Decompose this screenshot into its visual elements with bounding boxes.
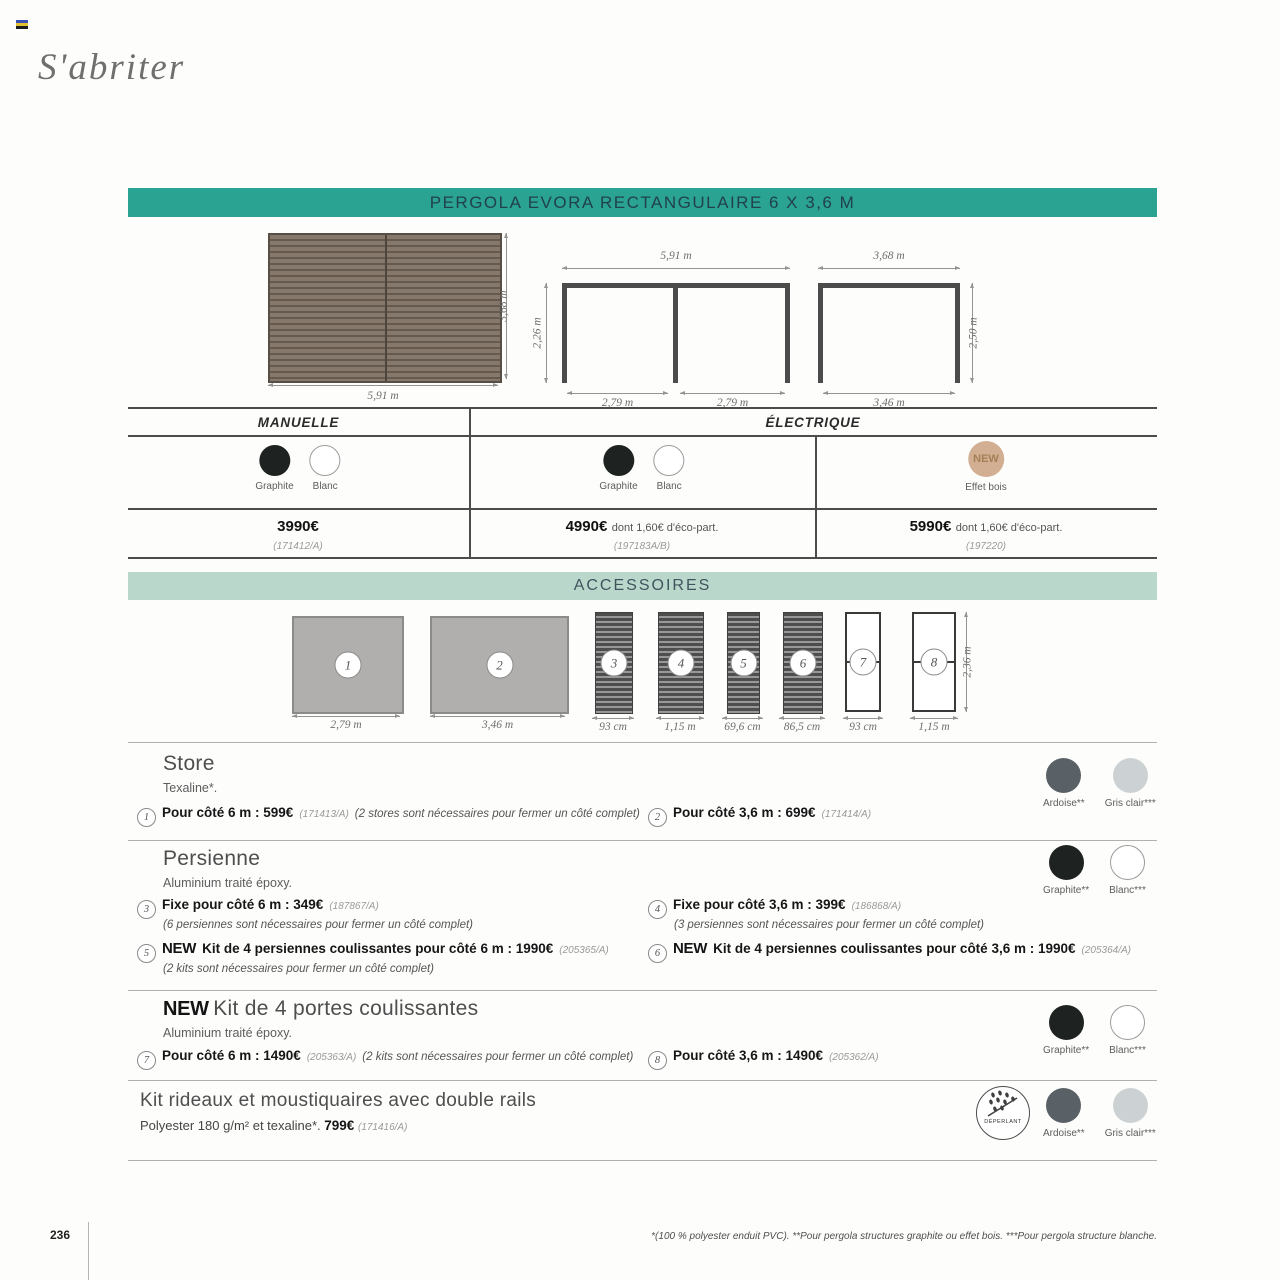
store-item-1: 1 Pour côté 6 m : 599€ (171413/A) (2 sto… — [137, 805, 640, 824]
item-note: (2 stores sont nécessaires pour fermer u… — [355, 808, 640, 820]
accessory-diagram-8: 8 — [912, 612, 956, 712]
swatch-label: Gris clair*** — [1105, 798, 1156, 809]
table-rule — [128, 435, 1157, 437]
accessory-diagram-4: 4 — [658, 612, 704, 714]
product-ref: (197220) — [910, 539, 1063, 554]
swatch-label: Ardoise** — [1043, 798, 1085, 809]
portes-section-title: NEW Kit de 4 portes coulissantes — [163, 997, 478, 1021]
dimension-line — [567, 393, 668, 394]
chapter-title: S'abriter — [38, 46, 185, 89]
dimension-line — [818, 268, 960, 269]
product-ref: (205364/A) — [1082, 945, 1131, 956]
dimension-line — [430, 716, 565, 717]
product-banner-title: PERGOLA EVORA RECTANGULAIRE 6 X 3,6 M — [430, 193, 856, 213]
blanc-swatch — [654, 445, 685, 476]
item-number-badge: 5 — [137, 944, 156, 963]
persienne-item-5: 5 NEW Kit de 4 persiennes coulissantes p… — [137, 940, 609, 960]
item-number-badge: 7 — [850, 649, 877, 676]
price-manual: 3990€ (171412/A) — [273, 515, 322, 554]
manual-color-options: Graphite Blanc — [255, 445, 340, 492]
persienne-item-6: 6 NEW Kit de 4 persiennes coulissantes p… — [648, 940, 1131, 960]
ardoise-swatch — [1046, 758, 1081, 793]
product-ref: (197183A/B) — [566, 539, 719, 554]
gris-clair-swatch — [1113, 758, 1148, 793]
side-view-height-label: 2,50 m — [968, 317, 980, 348]
store-item-2: 2 Pour côté 3,6 m : 699€ (171414/A) — [648, 805, 871, 824]
item-text: Pour côté 3,6 m : 699€ — [673, 805, 816, 820]
section-divider — [128, 1160, 1157, 1161]
accessory-diagram-6: 6 — [783, 612, 823, 714]
post — [562, 283, 567, 383]
item-number-badge: 2 — [486, 652, 513, 679]
roof-divider — [385, 235, 387, 381]
footer-rule — [88, 1222, 89, 1280]
dimension-line — [268, 385, 498, 386]
section-divider — [128, 1080, 1157, 1081]
top-view-width-label: 5,91 m — [268, 390, 498, 402]
table-rule — [815, 435, 817, 557]
item-note: (2 kits sont nécessaires pour fermer un … — [163, 963, 434, 975]
print-registration-mark — [16, 20, 28, 30]
persienne-color-options: Graphite** Blanc*** — [1043, 845, 1146, 896]
section-divider — [128, 990, 1157, 991]
rideaux-color-options: Ardoise** Gris clair*** — [1043, 1088, 1156, 1139]
section-title-text: Kit de 4 portes coulissantes — [213, 997, 478, 1020]
swatch-label: Blanc — [313, 481, 338, 492]
footnote: *(100 % polyester enduit PVC). **Pour pe… — [651, 1231, 1157, 1242]
pricing-table: MANUELLE ÉLECTRIQUE Graphite Blanc Graph… — [128, 407, 1157, 559]
dimension-line — [592, 718, 634, 719]
water-drops-icon — [983, 1087, 1023, 1123]
price-value: 4990€ — [566, 518, 608, 535]
blanc-swatch — [1110, 845, 1145, 880]
accessory-dim-2: 3,46 m — [430, 719, 565, 731]
item-number-badge: 1 — [137, 808, 156, 827]
store-section-subtitle: Texaline*. — [163, 781, 217, 795]
graphite-swatch — [1049, 1005, 1084, 1040]
side-view-width-label: 3,68 m — [818, 250, 960, 262]
rideaux-section-title: Kit rideaux et moustiquaires avec double… — [140, 1090, 536, 1112]
swatch-label: Graphite — [599, 481, 637, 492]
accessory-dim-6: 86,5 cm — [773, 721, 831, 733]
deperlant-badge: DÉPERLANT — [976, 1086, 1030, 1140]
price-suffix: dont 1,60€ d'éco-part. — [956, 522, 1063, 534]
item-number-badge: 6 — [790, 650, 817, 677]
accessory-diagram-7: 7 — [845, 612, 881, 712]
ardoise-swatch — [1046, 1088, 1081, 1123]
dimension-line — [843, 718, 883, 719]
item-text: Pour côté 6 m : 599€ — [162, 805, 293, 820]
accessories-height-label: 2,36 m — [962, 646, 974, 677]
dimension-line — [779, 718, 825, 719]
swatch-label: Graphite** — [1043, 1045, 1089, 1056]
accessory-dim-3: 93 cm — [585, 721, 641, 733]
top-view-height-label: 3,68 m — [498, 290, 510, 321]
item-number-badge: 3 — [601, 650, 628, 677]
rideaux-desc-text: Polyester 180 g/m² et texaline*. — [140, 1118, 321, 1133]
column-header-manual: MANUELLE — [128, 409, 469, 435]
accessory-diagram-2: 2 — [430, 616, 569, 714]
post — [955, 283, 960, 383]
dimension-line — [722, 718, 763, 719]
portes-item-7: 7 Pour côté 6 m : 1490€ (205363/A) (2 ki… — [137, 1048, 633, 1067]
product-ref: (171412/A) — [273, 539, 322, 554]
portes-item-8: 8 Pour côté 3,6 m : 1490€ (205362/A) — [648, 1048, 879, 1067]
post — [818, 283, 823, 383]
item-note: (3 persiennes sont nécessaires pour ferm… — [674, 919, 984, 931]
product-banner: PERGOLA EVORA RECTANGULAIRE 6 X 3,6 M — [128, 188, 1157, 217]
gris-clair-swatch — [1113, 1088, 1148, 1123]
graphite-swatch — [259, 445, 290, 476]
rideaux-description: Polyester 180 g/m² et texaline*. 799€ (1… — [140, 1118, 407, 1133]
product-ref: (171414/A) — [822, 809, 871, 820]
graphite-swatch — [1049, 845, 1084, 880]
price-value: 5990€ — [910, 518, 952, 535]
accessories-banner-title: ACCESSOIRES — [574, 577, 712, 595]
store-section-title: Store — [163, 752, 215, 776]
pergola-front-view-diagram — [562, 283, 790, 383]
section-divider — [128, 840, 1157, 841]
accessory-diagram-3: 3 — [595, 612, 633, 714]
accessory-dim-8: 1,15 m — [906, 721, 962, 733]
price-value: 3990€ — [277, 518, 319, 535]
column-header-electric: ÉLECTRIQUE — [469, 409, 1157, 435]
store-color-options: Ardoise** Gris clair*** — [1043, 758, 1156, 809]
item-number-badge: 8 — [648, 1051, 667, 1070]
item-number-badge: 5 — [730, 650, 757, 677]
product-ref: (171416/A) — [358, 1122, 407, 1133]
item-text: Kit de 4 persiennes coulissantes pour cô… — [713, 941, 1075, 956]
item-note: (2 kits sont nécessaires pour fermer un … — [362, 1051, 633, 1063]
swatch-label: Gris clair*** — [1105, 1128, 1156, 1139]
swatch-label: Blanc*** — [1109, 1045, 1146, 1056]
swatch-label: Blanc*** — [1109, 885, 1146, 896]
pergola-top-view-diagram — [268, 233, 502, 383]
item-text: Fixe pour côté 3,6 m : 399€ — [673, 897, 846, 912]
product-ref: (205365/A) — [559, 945, 608, 956]
product-ref: (171413/A) — [299, 809, 348, 820]
table-rule — [128, 508, 1157, 510]
accessories-banner: ACCESSOIRES — [128, 572, 1157, 600]
swatch-label: Graphite — [255, 481, 293, 492]
graphite-swatch — [603, 445, 634, 476]
dimension-line — [546, 283, 547, 383]
persienne-item-3: 3 Fixe pour côté 6 m : 349€ (187867/A) — [137, 897, 379, 916]
blanc-swatch — [310, 445, 341, 476]
accessory-diagram-1: 1 — [292, 616, 404, 714]
item-number-badge: 7 — [137, 1051, 156, 1070]
dimension-line — [292, 716, 400, 717]
dimension-line — [680, 393, 785, 394]
item-number-badge: 4 — [648, 900, 667, 919]
item-text: Fixe pour côté 6 m : 349€ — [162, 897, 323, 912]
item-number-badge: 8 — [921, 649, 948, 676]
effet-bois-new-badge: NEW — [968, 441, 1004, 477]
persienne-section-title: Persienne — [163, 847, 260, 871]
page-number: 236 — [50, 1228, 70, 1242]
swatch-label: Blanc — [657, 481, 682, 492]
price-value: 799€ — [324, 1118, 354, 1133]
persienne-section-subtitle: Aluminium traité époxy. — [163, 876, 292, 890]
swatch-label: Ardoise** — [1043, 1128, 1085, 1139]
product-ref: (187867/A) — [329, 901, 378, 912]
section-divider — [128, 742, 1157, 743]
item-text: Kit de 4 persiennes coulissantes pour cô… — [202, 941, 553, 956]
item-number-badge: 1 — [335, 652, 362, 679]
accessory-dim-1: 2,79 m — [292, 719, 400, 731]
electric-color-options: Graphite Blanc — [599, 445, 684, 492]
portes-color-options: Graphite** Blanc*** — [1043, 1005, 1146, 1056]
item-number-badge: 3 — [137, 900, 156, 919]
accessory-dim-4: 1,15 m — [652, 721, 708, 733]
new-label: NEW — [162, 940, 196, 957]
item-note: (6 persiennes sont nécessaires pour ferm… — [163, 919, 473, 931]
accessory-dim-7: 93 cm — [835, 721, 891, 733]
item-number-badge: 2 — [648, 808, 667, 827]
new-label: NEW — [163, 998, 209, 1020]
front-view-height-label: 2,26 m — [532, 317, 544, 348]
accessory-dim-5: 69,6 cm — [714, 721, 771, 733]
swatch-label: Graphite** — [1043, 885, 1089, 896]
item-number-badge: 6 — [648, 944, 667, 963]
beam — [818, 283, 960, 288]
post — [673, 283, 678, 383]
post — [785, 283, 790, 383]
product-ref: (205362/A) — [829, 1052, 878, 1063]
dimension-line — [656, 718, 704, 719]
item-number-badge: 4 — [668, 650, 695, 677]
badge-label: DÉPERLANT — [984, 1119, 1022, 1125]
dimension-line — [910, 718, 958, 719]
persienne-item-4: 4 Fixe pour côté 3,6 m : 399€ (186868/A) — [648, 897, 901, 916]
product-ref: (205363/A) — [307, 1052, 356, 1063]
pergola-side-view-diagram — [818, 283, 960, 383]
price-electric-wood: 5990€ dont 1,60€ d'éco-part. (197220) — [910, 515, 1063, 554]
new-label: NEW — [673, 940, 707, 957]
accessory-diagram-5: 5 — [727, 612, 760, 714]
item-text: Pour côté 3,6 m : 1490€ — [673, 1048, 823, 1063]
price-suffix: dont 1,60€ d'éco-part. — [612, 522, 719, 534]
electric-wood-color-option: NEW Effet bois — [965, 441, 1007, 493]
portes-section-subtitle: Aluminium traité époxy. — [163, 1026, 292, 1040]
front-view-width-label: 5,91 m — [562, 250, 790, 262]
item-text: Pour côté 6 m : 1490€ — [162, 1048, 301, 1063]
product-ref: (186868/A) — [852, 901, 901, 912]
swatch-label: Effet bois — [965, 482, 1007, 493]
price-electric: 4990€ dont 1,60€ d'éco-part. (197183A/B) — [566, 515, 719, 554]
blanc-swatch — [1110, 1005, 1145, 1040]
dimension-line — [823, 393, 955, 394]
dimension-line — [562, 268, 790, 269]
